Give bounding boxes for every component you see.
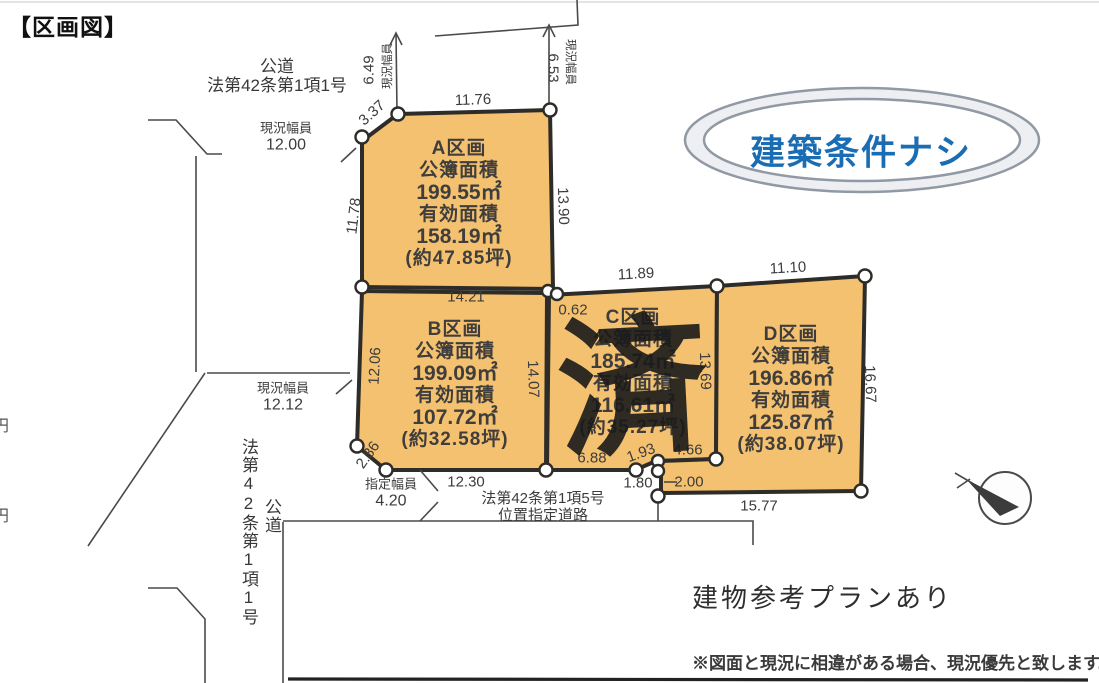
effective-area-label: 有効面積 bbox=[401, 385, 508, 407]
dim-d-top: 11.10 bbox=[769, 259, 806, 278]
left-road-width-label: 現況幅員 12.00 bbox=[260, 121, 312, 154]
disclaimer-note: ※図面と現況に相違がある場合、現況優先と致します。 bbox=[692, 649, 1099, 674]
effective-area-value: 158.19㎡ bbox=[405, 226, 512, 248]
left-diagonal-boundary bbox=[88, 373, 205, 546]
shitei-label: 指定幅員 bbox=[365, 477, 417, 492]
top-road-law: 法第42条第1項1号 bbox=[207, 76, 347, 95]
registered-area-value: 199.09㎡ bbox=[401, 363, 508, 385]
dim-line-649 bbox=[396, 33, 397, 112]
dim-b-bottom: 12.30 bbox=[447, 474, 485, 491]
top-road-label: 公道 法第42条第1項1号 bbox=[207, 57, 347, 95]
dim-d-bottom: 15.77 bbox=[740, 498, 778, 515]
vertical-road-name: 公道 bbox=[263, 498, 280, 534]
no-building-conditions-badge: 建築条件ナシ bbox=[750, 125, 972, 176]
dim-b-left: 12.06 bbox=[366, 347, 385, 385]
registered-area-label: 公簿面積 bbox=[737, 346, 844, 368]
effective-area-label: 有効面積 bbox=[737, 390, 844, 412]
left-road-corner-bottom bbox=[148, 588, 205, 683]
page-title: 【区画図】 bbox=[8, 8, 128, 42]
genkyo-value: 12.00 bbox=[260, 136, 312, 154]
bottom-road-label: 法第42条第1項5号 位置指定道路 bbox=[481, 490, 604, 525]
bottom-road-law: 法第42条第1項5号 bbox=[481, 490, 604, 507]
genkyo-label: 現況幅員 bbox=[260, 121, 312, 136]
effective-area-label: 有効面積 bbox=[405, 204, 512, 226]
bottom-road-line bbox=[283, 521, 753, 545]
arrow-1212 bbox=[336, 380, 352, 394]
dim-bc-shared: 14.07 bbox=[524, 360, 542, 398]
dim-top-width-right: 6.53 bbox=[545, 53, 562, 82]
parcel-name: D区画 bbox=[737, 324, 844, 346]
dim-b-top: 14.21 bbox=[447, 289, 485, 306]
dim-a-top: 11.76 bbox=[454, 91, 491, 109]
scan-edge-bottom bbox=[288, 679, 1088, 680]
dim-top-width-left: 6.49 bbox=[361, 55, 378, 84]
tsubo-area-value: (約32.58坪) bbox=[401, 429, 508, 451]
genkyo-value: 12.12 bbox=[257, 396, 309, 414]
leader-420-upper bbox=[420, 470, 438, 491]
parcel-b-label: B区画 公簿面積 199.09㎡ 有効面積 107.72㎡ (約32.58坪) bbox=[401, 319, 508, 451]
sold-stamp: 済 bbox=[551, 264, 712, 489]
arrow-1200 bbox=[341, 148, 356, 162]
dim-d-right: 16.67 bbox=[861, 365, 879, 403]
genkyo-label: 現況幅員 bbox=[257, 381, 309, 396]
registered-area-label: 公簿面積 bbox=[405, 160, 512, 182]
dim-top-width-left-label: 現況幅員 bbox=[379, 43, 395, 89]
tsubo-area-value: (約47.85坪) bbox=[405, 248, 512, 270]
plot-map-page: 【区画図】 公道 法第42条第1項1号 現況幅員 12.00 現況幅員 12.1… bbox=[0, 0, 1099, 683]
plan-note: 建物参考プランあり bbox=[692, 578, 953, 615]
left-road-corner-top bbox=[148, 120, 222, 154]
margin-fragment-upper: 円 bbox=[0, 412, 9, 436]
effective-area-value: 125.87㎡ bbox=[737, 412, 844, 434]
registered-area-value: 196.86㎡ bbox=[737, 368, 844, 390]
parcel-name: B区画 bbox=[401, 319, 508, 341]
registered-area-label: 公簿面積 bbox=[401, 341, 508, 363]
bottom-road-type: 位置指定道路 bbox=[481, 507, 604, 524]
effective-area-value: 107.72㎡ bbox=[401, 407, 508, 429]
tsubo-area-value: (約38.07坪) bbox=[737, 434, 844, 456]
leader-420-lower bbox=[420, 502, 438, 521]
parcel-d-label: D区画 公簿面積 196.86㎡ 有効面積 125.87㎡ (約38.07坪) bbox=[737, 324, 844, 456]
top-road-line bbox=[435, 0, 578, 36]
parcel-a-label: A区画 公簿面積 199.55㎡ 有効面積 158.19㎡ (約47.85坪) bbox=[405, 138, 512, 270]
north-compass-icon bbox=[955, 472, 1031, 524]
dim-a-right: 13.90 bbox=[554, 187, 572, 225]
shitei-value: 4.20 bbox=[365, 492, 417, 510]
top-road-name: 公道 bbox=[207, 57, 347, 76]
lower-left-road-width-label: 現況幅員 12.12 bbox=[257, 381, 309, 414]
parcel-name: A区画 bbox=[405, 138, 512, 160]
designated-width-label: 指定幅員 4.20 bbox=[365, 477, 417, 510]
registered-area-value: 199.55㎡ bbox=[405, 182, 512, 204]
vertical-road-law: 法第42条第1項1号 bbox=[240, 438, 257, 626]
dim-top-width-right-label: 現況幅員 bbox=[563, 39, 579, 85]
margin-fragment-lower: 円 bbox=[0, 502, 9, 526]
